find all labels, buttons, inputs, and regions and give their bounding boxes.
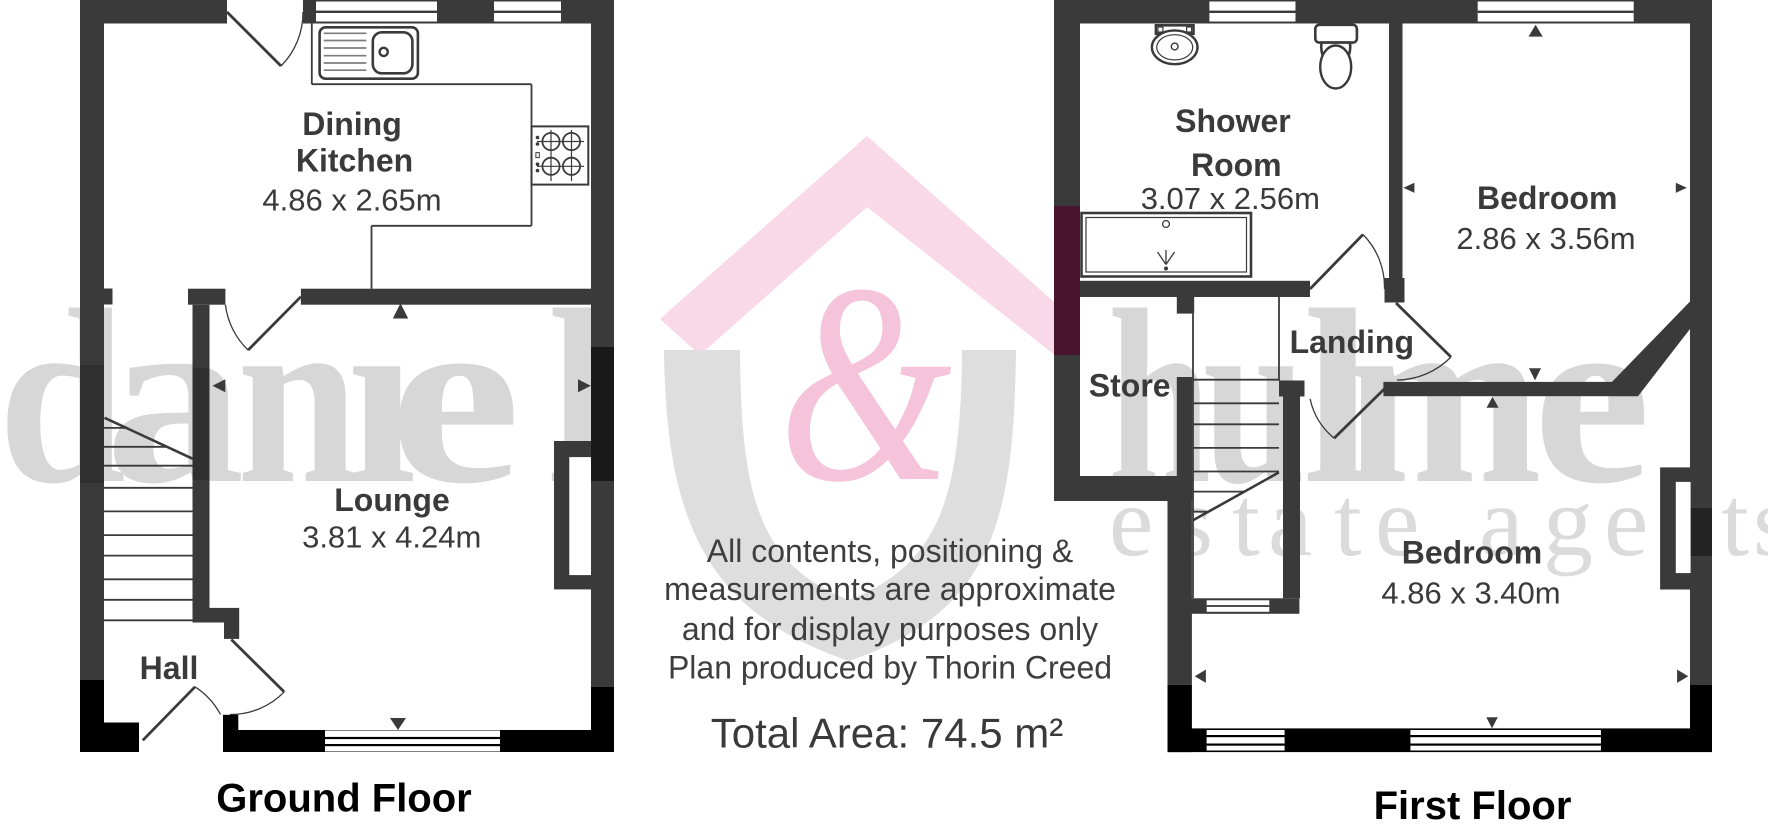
svg-text:t: t <box>1334 466 1362 577</box>
svg-text:Total Area: 74.5 m²: Total Area: 74.5 m² <box>711 710 1064 757</box>
svg-text:3.81 x 4.24m: 3.81 x 4.24m <box>302 519 481 554</box>
svg-text:First Floor: First Floor <box>1374 784 1572 824</box>
svg-text:t: t <box>1721 466 1749 577</box>
svg-text:All contents, positioning &: All contents, positioning & <box>707 533 1073 569</box>
svg-text:Lounge: Lounge <box>334 482 450 518</box>
svg-text:Hall: Hall <box>140 650 199 686</box>
svg-text:Store: Store <box>1089 368 1171 404</box>
svg-text:Bedroom: Bedroom <box>1477 180 1617 216</box>
svg-text:Shower: Shower <box>1175 103 1291 139</box>
svg-text:g: g <box>1543 466 1593 577</box>
svg-text:e: e <box>1604 466 1648 577</box>
svg-text:and for display purposes only: and for display purposes only <box>682 611 1098 647</box>
svg-text:Dining: Dining <box>302 106 402 142</box>
svg-text:4.86 x 3.40m: 4.86 x 3.40m <box>1381 575 1560 610</box>
svg-text:Landing: Landing <box>1290 324 1414 360</box>
svg-text:Plan produced by Thorin Creed: Plan produced by Thorin Creed <box>668 649 1112 685</box>
svg-text:3.07 x 2.56m: 3.07 x 2.56m <box>1141 181 1320 216</box>
svg-text:Bedroom: Bedroom <box>1402 534 1542 570</box>
svg-text:Ground Floor: Ground Floor <box>216 777 472 821</box>
svg-text:Kitchen: Kitchen <box>296 143 413 179</box>
svg-text:&: & <box>779 226 952 542</box>
svg-text:t: t <box>1232 466 1260 577</box>
svg-text:Room: Room <box>1191 147 1282 183</box>
svg-text:measurements are approximate: measurements are approximate <box>664 571 1116 607</box>
svg-text:s: s <box>1753 466 1768 577</box>
svg-text:2.86 x 3.56m: 2.86 x 3.56m <box>1456 221 1635 256</box>
svg-text:4.86 x 2.65m: 4.86 x 2.65m <box>262 182 441 217</box>
